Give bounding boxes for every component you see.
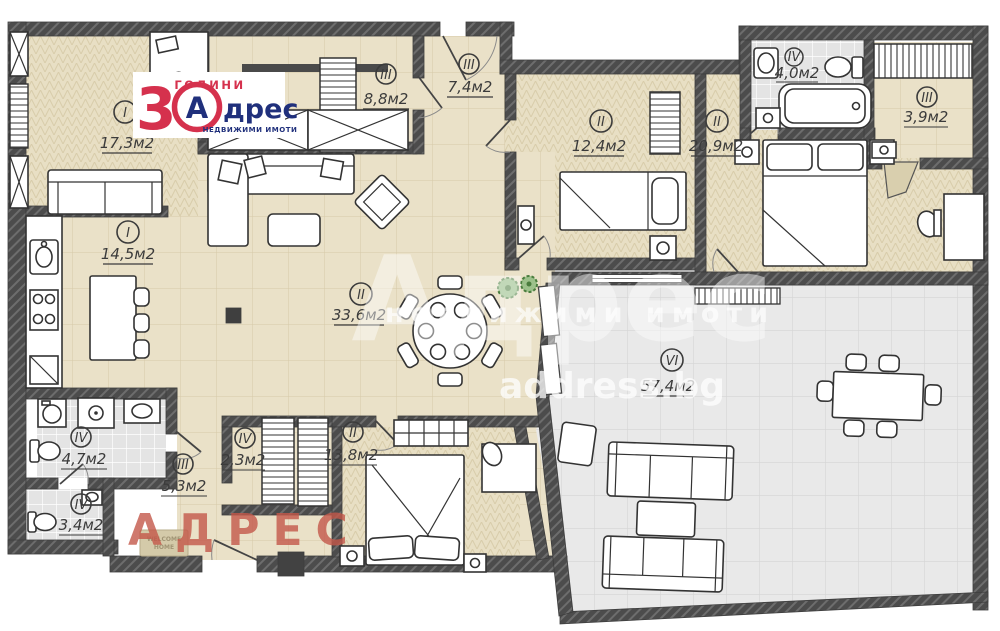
wall-entry-a [413, 36, 424, 78]
shelf-rail [242, 64, 388, 72]
logo: ГОДИНИ 3 А дрес НЕДВИЖИМИ ИМОТИ [133, 72, 298, 143]
bed-138 [366, 455, 464, 565]
column-box-a [10, 32, 28, 76]
room-numeral: III [463, 58, 475, 73]
kitchen-table [90, 276, 149, 360]
room-area: 4,0м2 [775, 64, 820, 82]
wall-39-bottom-b [920, 158, 988, 169]
wall-top-d [739, 26, 988, 40]
ottoman [268, 214, 320, 246]
desk-138 [479, 439, 536, 492]
wall-bottom-left [8, 540, 118, 554]
kitchen-counter [26, 216, 62, 388]
room-numeral: II [597, 115, 605, 130]
room-area: 5,3м2 [162, 477, 207, 495]
shower-47 [78, 398, 114, 428]
cabinet-40 [756, 108, 780, 128]
room-area: 20,9м2 [689, 137, 743, 155]
wardrobe-124 [650, 92, 680, 154]
room-numeral: III [380, 68, 392, 83]
room-numeral: I [126, 226, 130, 241]
toilet-47 [30, 440, 60, 462]
room-area: 14,5м2 [101, 245, 155, 263]
room-area: 8,8м2 [364, 90, 409, 108]
wall-top-a [14, 22, 440, 36]
room-area: 3,9м2 [904, 108, 949, 126]
watermark-tagline: недвижими имоти [385, 298, 775, 329]
logo-tagline: НЕДВИЖИМИ ИМОТИ [203, 126, 298, 134]
watermark-stamp: АДРЕС [128, 505, 361, 556]
room-numeral: IV [239, 432, 253, 447]
room-area: 12,4м2 [572, 137, 626, 155]
sofa-living1 [48, 170, 162, 214]
watermark-website: address.bg [499, 366, 725, 407]
wall-entry-b [413, 110, 424, 154]
logo-years-number: 3 [136, 75, 176, 143]
room-area: 3,4м2 [59, 516, 104, 534]
nightstand-138-right [464, 554, 486, 572]
sofa-terrace-a [607, 442, 734, 500]
wall-wc34-right [103, 478, 114, 556]
toilet-40 [825, 57, 863, 78]
wall-124-left-a [505, 74, 516, 120]
logo-brand-rest: дрес [223, 94, 298, 125]
wall-top-c [500, 60, 750, 74]
room-numeral: II [349, 426, 357, 441]
room-numeral: II [713, 115, 721, 130]
logo-brand-initial: А [186, 91, 209, 125]
coffee-table-terrace [636, 501, 695, 537]
room-numeral: III [921, 91, 933, 106]
wall-bottom-a [110, 556, 202, 572]
column-box-b [10, 156, 28, 208]
wardrobe-closet-a [262, 418, 294, 504]
room-numeral: IV [75, 498, 89, 513]
sink-47 [124, 399, 160, 423]
room-area: 4,7м2 [62, 450, 107, 468]
room-numeral: I [123, 106, 127, 121]
wall-bath40-left [740, 40, 751, 140]
wall-bath47-right-a [166, 388, 177, 434]
room-numeral: IV [788, 50, 802, 65]
toilet-34 [28, 512, 56, 532]
room-numeral: IV [75, 431, 89, 446]
shelf-39 [872, 142, 896, 158]
wall-bath40-bottom-b [778, 128, 875, 140]
sofa-terrace-b [602, 536, 724, 592]
bed-209 [763, 140, 867, 266]
bed-124 [560, 172, 686, 230]
wall-wc34-top-a [26, 478, 58, 489]
bathtub [779, 84, 871, 128]
wardrobe-138 [394, 420, 468, 446]
floor-plan-page: WELCOME HOME I 17,3м2 III 8,8м2 III 7,4м… [0, 0, 1000, 631]
room-area: 7,4м2 [448, 78, 493, 96]
column-kitchen [226, 308, 241, 323]
radiator-left [10, 84, 28, 148]
wall-right [973, 26, 988, 610]
wardrobe-strip-top-right [874, 44, 972, 78]
room-numeral: III [177, 458, 189, 473]
armchair-terrace [557, 422, 596, 466]
floor-plan-image: WELCOME HOME I 17,3м2 III 8,8м2 III 7,4м… [0, 0, 1000, 631]
washing-machine-47 [38, 399, 66, 427]
room-area: 2,3м2 [221, 451, 266, 469]
room-area: 13,8м2 [324, 446, 378, 464]
